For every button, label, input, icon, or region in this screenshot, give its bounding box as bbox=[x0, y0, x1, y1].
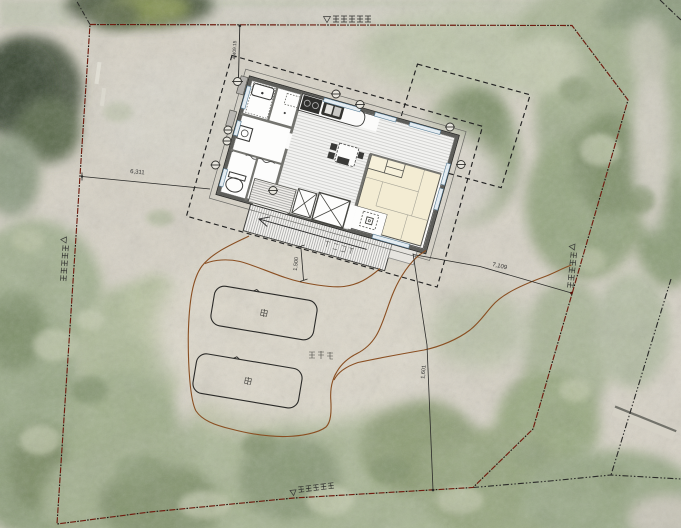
svg-text:4,409.15: 4,409.15 bbox=[232, 40, 239, 59]
svg-text:1,601: 1,601 bbox=[420, 365, 427, 379]
